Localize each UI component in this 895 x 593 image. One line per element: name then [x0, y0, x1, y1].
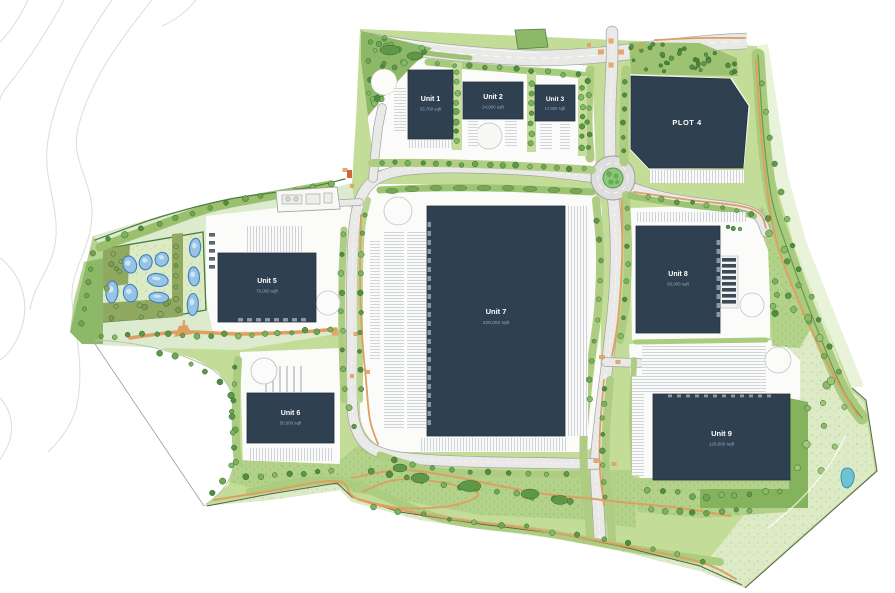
svg-text:Unit 2: Unit 2	[483, 94, 503, 101]
svg-text:Unit 8: Unit 8	[668, 271, 688, 278]
svg-text:PLOT 4: PLOT 4	[672, 118, 702, 127]
svg-text:Unit 7: Unit 7	[486, 307, 507, 316]
svg-text:Unit 3: Unit 3	[546, 96, 565, 103]
svg-text:33,700 sqft: 33,700 sqft	[420, 106, 443, 111]
svg-text:70,000 sqft: 70,000 sqft	[256, 288, 279, 293]
svg-text:329,000 sqft: 329,000 sqft	[483, 320, 510, 326]
svg-text:128,000 sqft: 128,000 sqft	[709, 442, 735, 447]
svg-text:50,000 sqft: 50,000 sqft	[280, 420, 303, 425]
svg-text:Unit 9: Unit 9	[711, 429, 732, 438]
svg-text:Unit 5: Unit 5	[257, 278, 277, 285]
svg-text:17,900 sqft: 17,900 sqft	[545, 106, 567, 111]
svg-text:24,900 sqft: 24,900 sqft	[482, 104, 505, 109]
svg-text:95,000 sqft: 95,000 sqft	[667, 281, 690, 286]
svg-text:Unit 6: Unit 6	[281, 410, 301, 417]
svg-text:Unit 1: Unit 1	[421, 96, 441, 103]
